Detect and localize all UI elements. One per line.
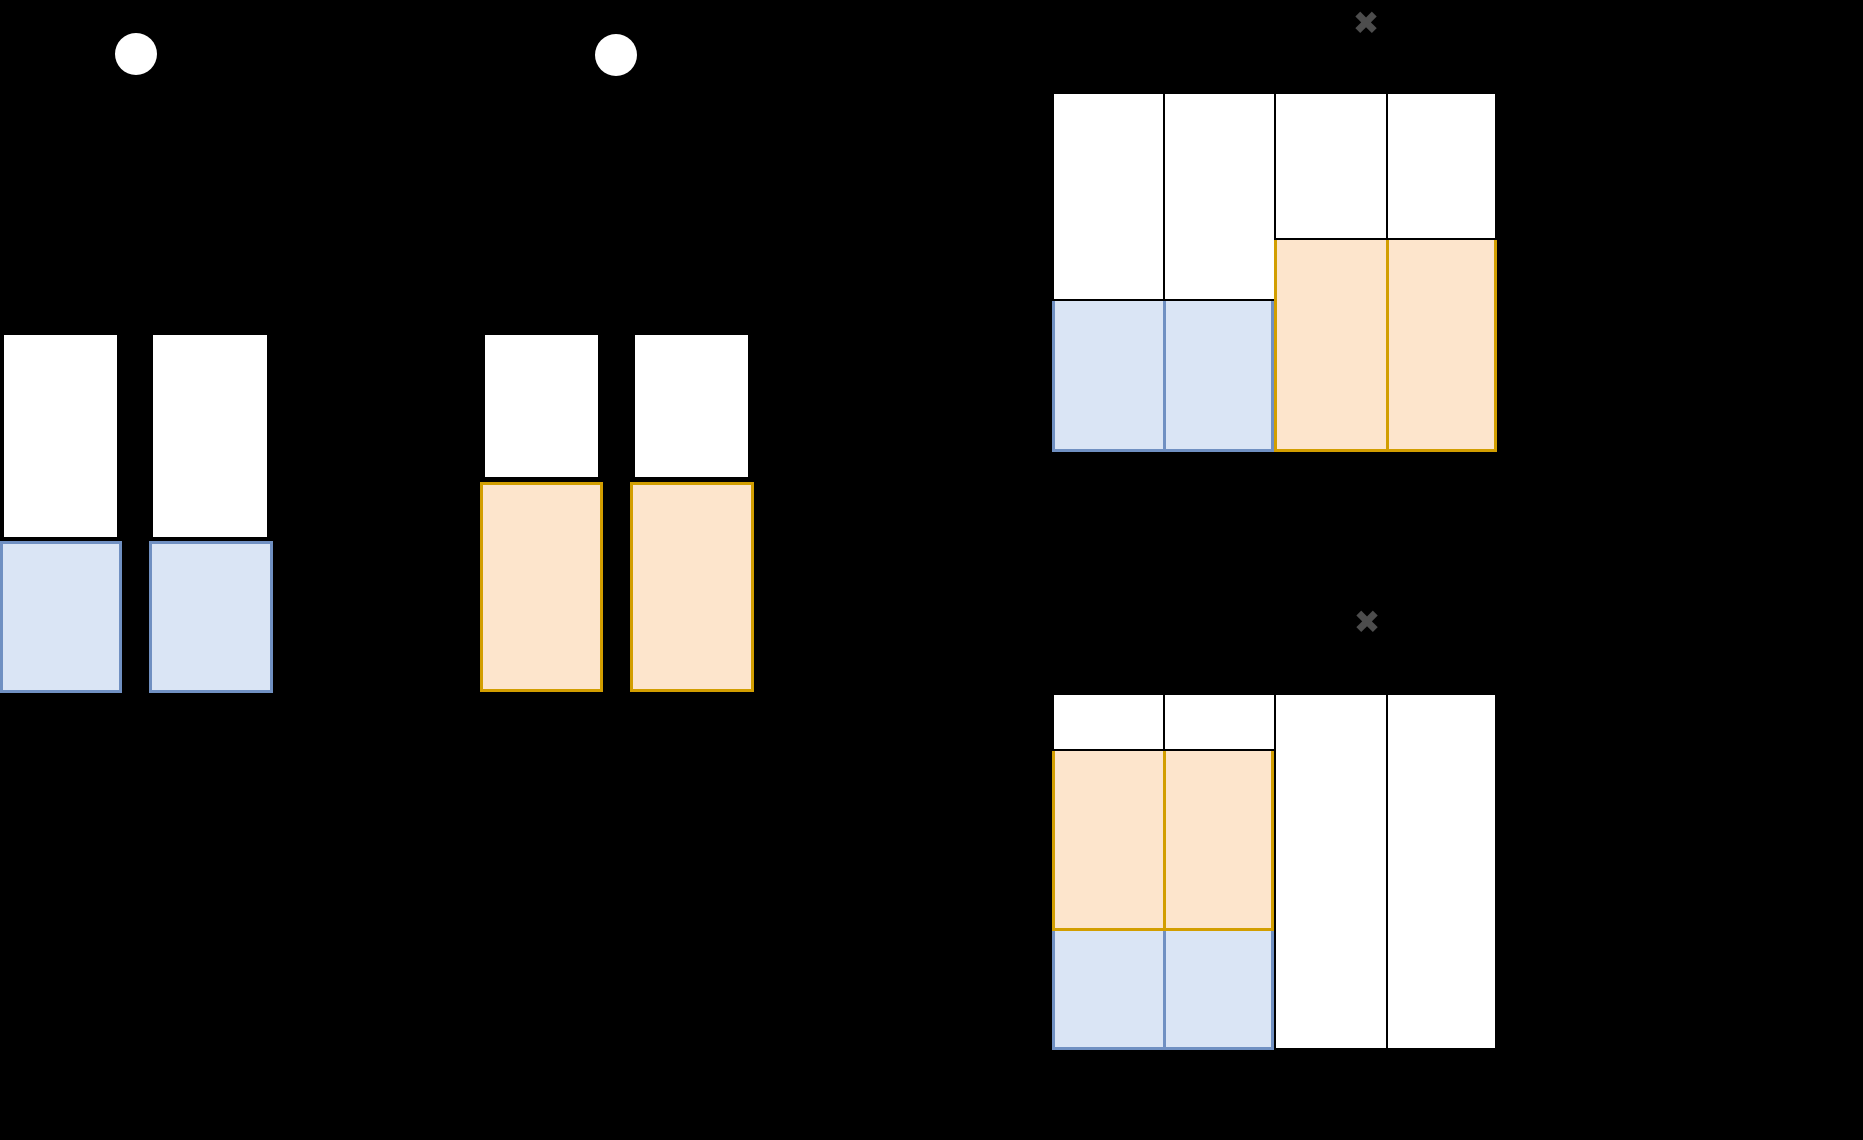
grid2-col2-unshaded [1163,693,1276,751]
grid1-col3-orange [1274,240,1389,452]
grid2-col4-unshaded [1386,693,1497,1050]
grid2-col1-blue [1052,931,1166,1050]
grid1-col1-blue [1052,301,1166,452]
grid2-col2-orange [1163,751,1274,931]
grid2-col1-unshaded [1052,693,1165,751]
grid2-col2-blue [1163,931,1274,1050]
group1-bar1-unshaded [2,333,119,539]
grid1-col1-unshaded [1052,92,1165,301]
group2-bar1-orange [480,482,603,692]
bullet-dot-2 [595,34,637,76]
group2-bar2-orange [630,482,754,692]
fraction-bar-model-diagram: ✖✖ [0,0,1863,1140]
grid2-col1-orange [1052,751,1166,931]
multiply-icon-2: ✖ [1354,606,1381,638]
group2-bar1-unshaded [483,333,600,479]
grid2-col3-unshaded [1274,693,1388,1050]
grid1-col2-unshaded [1163,92,1276,301]
grid1-col3-unshaded [1274,92,1388,240]
multiply-icon-1: ✖ [1353,7,1380,39]
grid1-col4-unshaded [1386,92,1497,240]
group1-bar1-blue [0,541,122,693]
grid1-col2-blue [1163,301,1274,452]
grid1-col4-orange [1386,240,1497,452]
group1-bar2-unshaded [151,333,269,539]
group1-bar2-blue [149,541,273,693]
group2-bar2-unshaded [633,333,750,479]
bullet-dot-1 [115,33,157,75]
